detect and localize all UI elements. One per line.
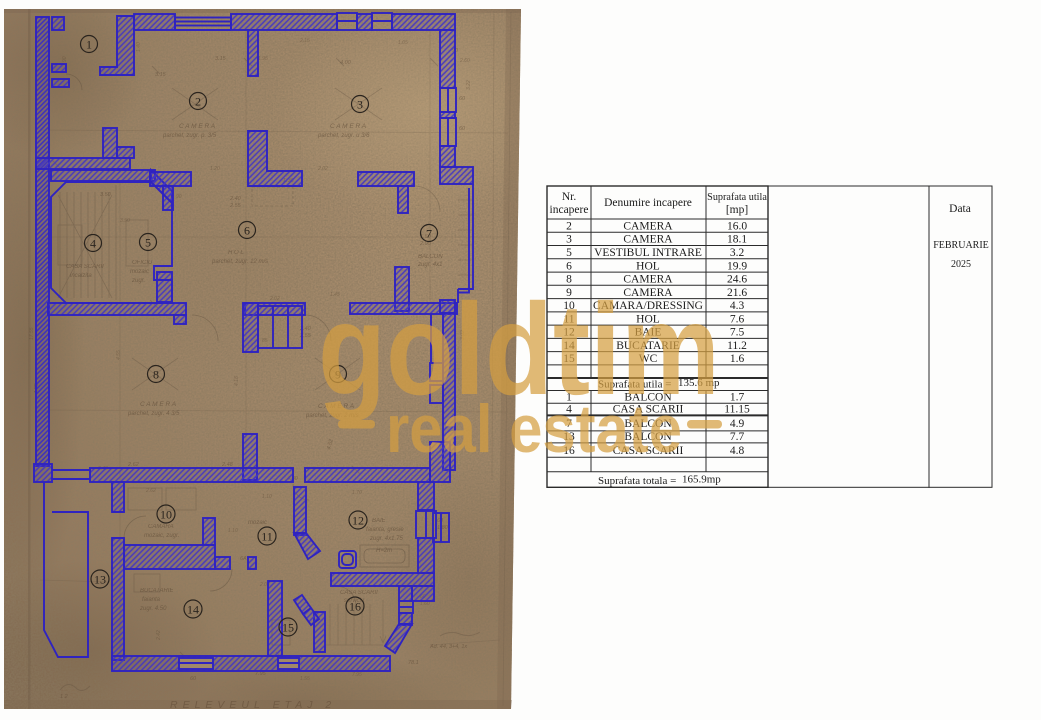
svg-text:parchet, zugr. 4 3/5: parchet, zugr. 4 3/5 [127,411,180,417]
svg-text:3: 3 [357,98,363,112]
svg-text:1.10: 1.10 [228,528,238,534]
svg-text:5: 5 [145,236,151,250]
svg-text:2.15: 2.15 [299,38,310,44]
svg-text:6: 6 [566,260,572,272]
svg-text:zugr. 4.50: zugr. 4.50 [139,606,167,612]
svg-text:1.40: 1.40 [136,42,142,52]
svg-text:CAMARA: CAMARA [148,524,174,530]
svg-text:6A: 6A [240,556,247,562]
svg-text:zugr. 4x1: zugr. 4x1 [417,262,442,268]
svg-text:2.55: 2.55 [229,203,242,209]
svg-text:2025: 2025 [951,259,971,270]
svg-text:Suprafata totala =: Suprafata totala = [598,475,676,487]
svg-text:faianta, gresie: faianta, gresie [366,527,404,533]
svg-text:18.1: 18.1 [727,234,747,246]
svg-text:HOL: HOL [636,260,660,272]
svg-text:mozaic, zugr.: mozaic, zugr. [144,533,179,539]
svg-text:165.9mp: 165.9mp [682,474,721,486]
svg-text:4.9: 4.9 [730,418,745,430]
svg-text:1.95: 1.95 [258,56,268,62]
svg-text:incapere: incapere [550,204,589,216]
svg-text:78.1: 78.1 [408,660,419,666]
svg-text:14: 14 [187,603,199,617]
svg-text:parchet, zugr. 12 m/s: parchet, zugr. 12 m/s [211,259,268,265]
svg-text:7: 7 [426,227,432,241]
svg-text:2.42: 2.42 [156,630,162,641]
svg-text:Suprafata utila: Suprafata utila [707,192,767,203]
svg-text:H=2m: H=2m [376,548,392,554]
svg-text:incalzita: incalzita [70,273,92,279]
svg-text:real estate: real estate [386,391,682,467]
svg-text:4.8: 4.8 [730,445,745,457]
svg-text:4.18: 4.18 [234,376,240,386]
svg-text:1.20: 1.20 [210,166,220,172]
svg-text:2: 2 [566,221,572,233]
svg-text:parchet, zugr. p. 3/5: parchet, zugr. p. 3/5 [162,133,217,139]
svg-text:17.55: 17.55 [29,327,35,340]
svg-text:11.2: 11.2 [727,340,747,352]
svg-text:1.10: 1.10 [262,494,272,500]
svg-text:CASA SCARII: CASA SCARII [66,264,104,270]
svg-text:21.6: 21.6 [727,287,747,299]
svg-text:85: 85 [262,338,268,344]
svg-text:BUCATARIE: BUCATARIE [140,588,174,594]
svg-text:4: 4 [90,237,96,251]
svg-text:3.50: 3.50 [100,192,112,198]
svg-text:mozaic: mozaic [130,269,149,275]
svg-text:faianta: faianta [142,597,161,603]
svg-text:OFICIU: OFICIU [132,260,153,266]
svg-text:C A M E R A: C A M E R A [179,123,215,130]
svg-text:2.62: 2.62 [145,488,156,494]
svg-text:BAIE: BAIE [372,518,387,524]
svg-text:1 2: 1 2 [60,694,68,700]
svg-text:1.80: 1.80 [437,525,449,531]
svg-text:H O L: H O L [228,250,244,256]
svg-text:1.05: 1.05 [398,40,408,46]
svg-text:7.95: 7.95 [352,672,362,678]
svg-text:16.0: 16.0 [727,221,747,233]
svg-text:3.50: 3.50 [120,218,130,224]
svg-text:7.6: 7.6 [730,313,745,325]
svg-text:90: 90 [176,194,182,200]
svg-text:19.9: 19.9 [727,260,747,272]
svg-text:7.5: 7.5 [730,327,745,339]
svg-text:CASA SCARII: CASA SCARII [340,590,378,596]
svg-text:2.55: 2.55 [299,333,312,339]
svg-text:11.15: 11.15 [724,404,750,416]
svg-text:4.3: 4.3 [730,300,745,312]
svg-text:12: 12 [352,514,364,528]
svg-text:[mp]: [mp] [726,204,748,216]
svg-text:CAMERA: CAMERA [623,221,673,233]
svg-text:7.7: 7.7 [730,431,745,443]
svg-text:1.7: 1.7 [730,392,745,404]
svg-text:16: 16 [349,600,361,614]
svg-text:4.00: 4.00 [340,60,352,66]
svg-text:VESTIBUL INTRARE: VESTIBUL INTRARE [594,247,702,259]
svg-text:zugr. 4x1.75: zugr. 4x1.75 [369,536,403,542]
svg-text:2.02: 2.02 [269,296,280,302]
svg-text:3.22: 3.22 [466,80,472,90]
svg-text:3.15: 3.15 [215,56,227,62]
svg-text:5: 5 [566,247,572,259]
svg-text:13: 13 [94,573,106,587]
svg-text:8: 8 [153,368,159,382]
svg-text:Nr.: Nr. [562,191,577,203]
svg-text:Data: Data [949,203,971,215]
svg-text:6: 6 [244,224,250,238]
svg-text:11: 11 [261,530,273,544]
svg-text:60: 60 [190,676,197,682]
svg-text:90: 90 [62,56,68,62]
svg-text:4.55: 4.55 [116,350,122,360]
svg-text:2.60: 2.60 [459,58,470,64]
svg-text:10: 10 [160,508,172,522]
svg-text:Denumire incapere: Denumire incapere [604,197,692,209]
svg-text:1.70: 1.70 [352,490,362,496]
svg-text:2.40: 2.40 [229,196,242,202]
svg-text:parchet, zugr. u 3/6: parchet, zugr. u 3/6 [317,133,370,139]
svg-text:15: 15 [282,621,294,635]
svg-text:FEBRUARIE: FEBRUARIE [933,240,989,251]
svg-text:C A M E R A: C A M E R A [140,401,176,408]
svg-text:zugr.: zugr. [131,278,145,284]
svg-text:BALCON: BALCON [418,254,443,260]
svg-text:CAMERA: CAMERA [623,234,673,246]
svg-text:C A M E R A: C A M E R A [330,123,366,130]
svg-text:2.02: 2.02 [317,166,328,172]
svg-text:60: 60 [459,126,466,132]
svg-text:1.55: 1.55 [300,676,310,682]
svg-text:mozaic: mozaic [248,520,267,526]
svg-text:3.2: 3.2 [730,247,745,259]
svg-text:1.6: 1.6 [730,353,745,365]
svg-text:24.6: 24.6 [727,274,747,286]
svg-text:3: 3 [566,234,572,246]
svg-text:RELEVEUL ETAJ 2: RELEVEUL ETAJ 2 [170,699,336,711]
svg-text:Ad. 44, 3+4, 1x: Ad. 44, 3+4, 1x [429,644,467,650]
svg-text:2: 2 [195,95,201,109]
svg-text:2.40: 2.40 [299,326,312,332]
svg-text:1: 1 [86,38,92,52]
svg-text:60: 60 [459,96,466,102]
svg-text:3.15: 3.15 [155,72,167,78]
